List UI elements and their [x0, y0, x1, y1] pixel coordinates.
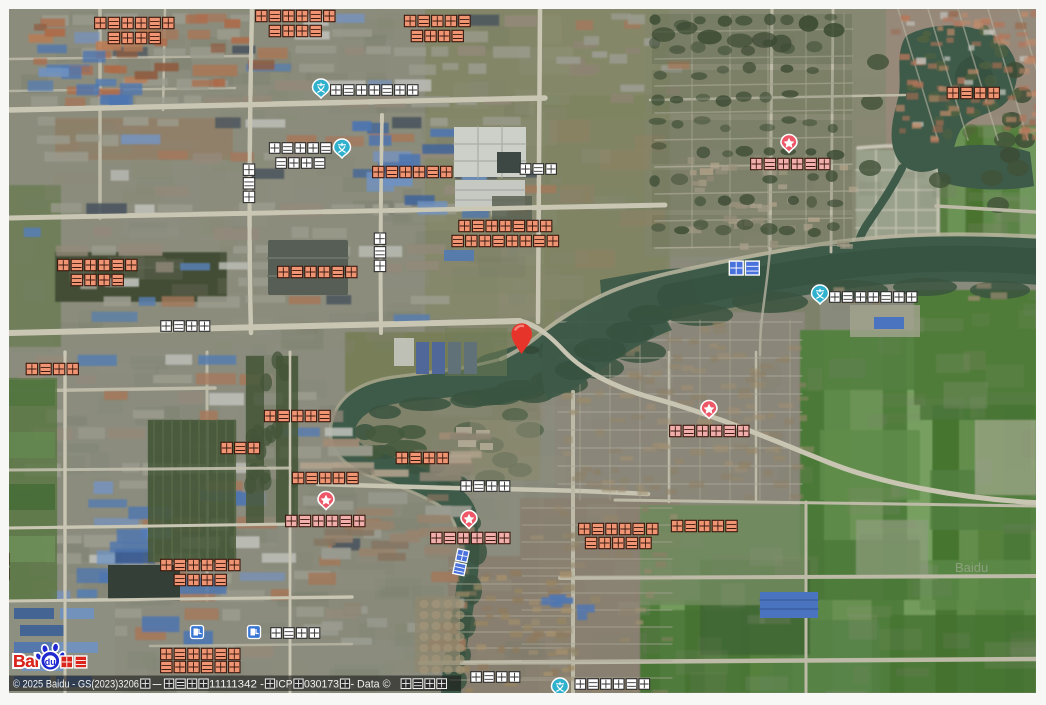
- svg-text:© 2025 Baidu - GS(2023)3206: © 2025 Baidu - GS(2023)3206: [13, 679, 139, 691]
- svg-text:du: du: [45, 657, 56, 667]
- svg-text:-: -: [151, 679, 164, 691]
- svg-text:Baidu: Baidu: [955, 560, 988, 575]
- svg-text:ICP: ICP: [276, 679, 293, 691]
- svg-text:11111342 -: 11111342 -: [209, 679, 264, 691]
- svg-text:- Data ©: - Data ©: [351, 679, 392, 691]
- svg-text:030173: 030173: [304, 679, 339, 691]
